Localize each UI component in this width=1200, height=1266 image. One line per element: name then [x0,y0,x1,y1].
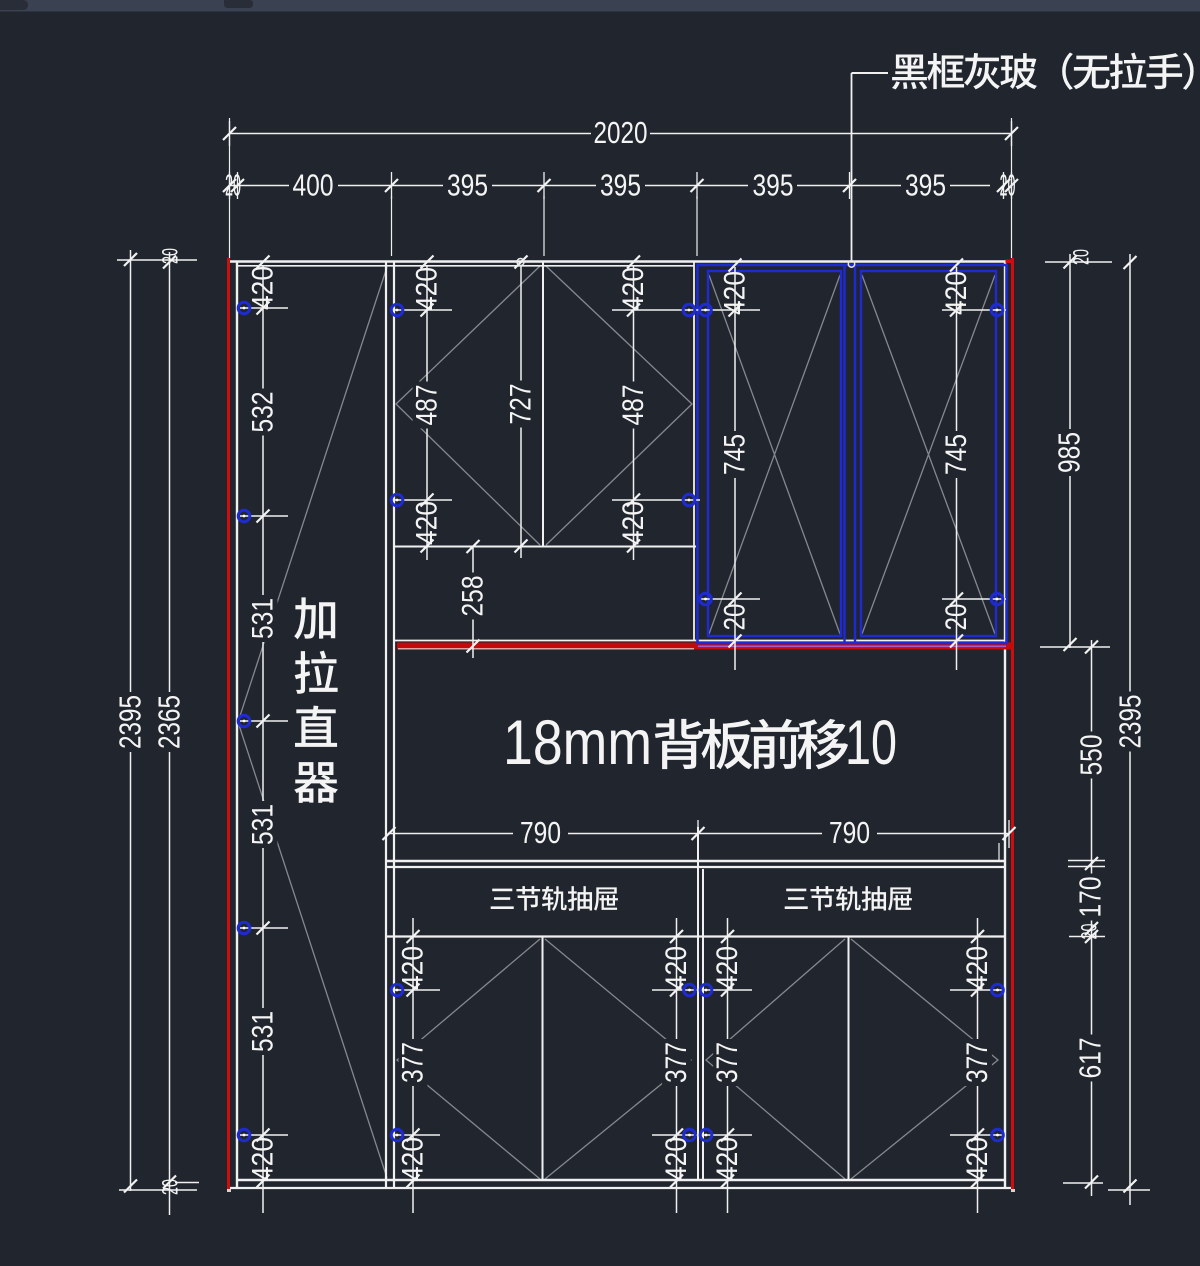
svg-text:20: 20 [225,168,241,203]
svg-text:395: 395 [600,168,641,203]
svg-text:18mm: 18mm [503,708,652,778]
svg-text:377: 377 [711,1042,744,1083]
svg-text:420: 420 [660,1137,693,1181]
svg-text:745: 745 [719,434,752,475]
svg-text:20: 20 [158,1179,183,1195]
svg-text:745: 745 [940,434,973,475]
svg-text:2395: 2395 [1113,695,1148,749]
svg-text:170: 170 [1073,877,1108,918]
svg-text:420: 420 [711,1137,744,1181]
svg-text:20: 20 [1077,924,1102,940]
svg-text:20: 20 [1069,249,1094,265]
svg-text:377: 377 [961,1042,994,1083]
svg-text:420: 420 [719,271,752,315]
svg-text:420: 420 [617,267,650,311]
svg-text:420: 420 [397,946,430,990]
svg-text:531: 531 [247,598,280,639]
svg-text:420: 420 [397,1137,430,1181]
svg-text:2365: 2365 [152,695,187,749]
svg-text:985: 985 [1052,432,1087,473]
svg-text:420: 420 [617,501,650,545]
svg-text:487: 487 [411,385,444,426]
svg-text:420: 420 [961,1137,994,1181]
svg-text:377: 377 [660,1042,693,1083]
svg-text:258: 258 [457,576,490,617]
svg-text:20: 20 [158,248,183,264]
svg-text:400: 400 [293,168,334,203]
svg-text:550: 550 [1074,735,1109,776]
svg-text:2020: 2020 [594,115,648,150]
svg-text:790: 790 [520,815,561,850]
svg-text:531: 531 [247,1011,280,1052]
svg-text:420: 420 [411,501,444,545]
svg-text:20: 20 [1000,168,1016,203]
svg-text:420: 420 [247,266,280,310]
svg-text:10: 10 [845,708,897,778]
svg-text:377: 377 [397,1042,430,1083]
svg-text:617: 617 [1073,1038,1108,1079]
svg-text:395: 395 [753,168,794,203]
svg-text:20: 20 [940,604,973,631]
svg-text:420: 420 [411,267,444,311]
svg-text:395: 395 [905,168,946,203]
svg-text:395: 395 [447,168,488,203]
svg-text:20: 20 [719,604,752,631]
svg-text:420: 420 [711,946,744,990]
svg-text:420: 420 [940,271,973,315]
svg-text:2395: 2395 [113,695,148,749]
svg-text:531: 531 [247,804,280,845]
svg-text:420: 420 [961,946,994,990]
svg-text:420: 420 [247,1137,280,1181]
svg-text:532: 532 [247,392,280,433]
svg-text:790: 790 [829,815,870,850]
svg-text:487: 487 [617,385,650,426]
svg-text:727: 727 [505,384,538,425]
